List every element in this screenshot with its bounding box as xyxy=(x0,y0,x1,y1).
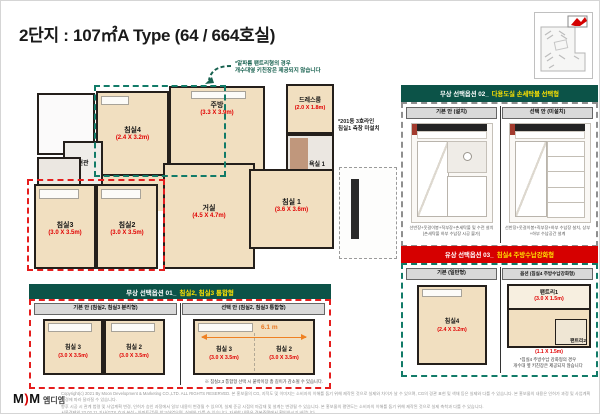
option3-note-line2: 개수대 옆 키친장은 제공되지 않습니다 xyxy=(501,363,595,369)
shelf-stack xyxy=(547,141,585,217)
mini-room-name: 침실4 xyxy=(419,319,485,327)
room-name: 침실 1 xyxy=(251,199,332,207)
option3-pantry-plan: 팬트리1 (3.0 X 1.5m) 팬트리2 xyxy=(507,284,591,348)
option3-body: 기본 (일반형) 옵션 (침실4 주방수납강화형) 침실4 (2.4 X 3.2… xyxy=(401,263,598,377)
counter xyxy=(417,131,487,139)
mini-room-name: 침실 3 xyxy=(195,347,253,355)
balcony-outline xyxy=(339,167,397,259)
column-divider xyxy=(500,106,501,243)
column-divider xyxy=(180,303,181,385)
page-title: 2단지 : 107㎡A Type (64 / 664호실) xyxy=(19,21,275,46)
logo-swoosh-icon: ) xyxy=(24,391,28,406)
logo-letter: M xyxy=(29,391,40,406)
shelf xyxy=(547,141,585,157)
shelf xyxy=(547,156,585,172)
counter xyxy=(515,131,585,139)
lower-cabinet xyxy=(447,176,487,217)
option1-basic-plan: 침실 3 (3.0 X 3.5m) 침실 2 (3.0 X 3.5m) xyxy=(43,319,165,375)
logo-letter: M xyxy=(13,391,24,406)
closet xyxy=(48,323,92,332)
bedroom23-option-outline xyxy=(27,179,165,271)
wardrobe-cabinet xyxy=(515,141,547,217)
option3-note: *침실4 주방수납 강화형의 경우 개수대 옆 키친장은 제공되지 않습니다 xyxy=(501,357,595,370)
room-name: 드레스룸 xyxy=(288,98,332,105)
option1-header-prefix: 무상 선택옵션 01_ xyxy=(126,287,176,297)
dashed-arrow-icon xyxy=(205,63,233,85)
alpha-room-option-outline xyxy=(94,85,226,177)
mini-room-name: 침실 3 xyxy=(45,345,101,353)
shelf xyxy=(547,187,585,203)
closet xyxy=(422,289,462,297)
wall xyxy=(515,124,585,131)
option2-col-left: 기본 안 (설치) xyxy=(406,107,497,119)
option2-panel: 무상 선택옵션 02_ 다용도실 손세탁볼 선택형 기본 안 (설치) 선택 안… xyxy=(401,85,598,243)
site-location-map xyxy=(534,12,593,79)
balcony-wall xyxy=(351,179,359,239)
option2-body: 기본 안 (설치) 선택 안 (미설치) xyxy=(401,102,598,247)
mini-room-name: 침실 2 xyxy=(106,345,162,353)
company-logo: M ) M 엠디엠 xyxy=(13,391,65,406)
option1-selected-plan: 6.1 m 침실 3 (3.0 X 3.5m) 침실 2 (3.0 X 3.5m… xyxy=(193,319,315,375)
side-window-note: *201동 3호라인 침실1 측창 미설치 xyxy=(338,119,408,133)
room-dim: (4.5 X 4.7m) xyxy=(165,213,253,220)
mini-room-dim: (3.0 X 3.5m) xyxy=(45,353,101,360)
option1-header-highlight: 침실2, 침실3 통합형 xyxy=(179,287,234,297)
dimension-label: 6.1 m xyxy=(261,324,278,331)
option1-header: 무상 선택옵션 01_ 침실2, 침실3 통합형 xyxy=(29,284,331,299)
pantry1-area: 팬트리1 (3.0 X 1.5m) xyxy=(509,286,589,310)
wall xyxy=(417,124,487,131)
shelf xyxy=(547,202,585,218)
floor-plan-slide: 2단지 : 107㎡A Type (64 / 664호실) 침실4 (2.4 X… xyxy=(0,0,600,414)
room-dim: (2.0 X 1.8m) xyxy=(288,105,332,112)
side-window-note-line2: 침실1 측창 미설치 xyxy=(338,126,408,133)
closet xyxy=(111,323,155,332)
option1-body: 기본 안 (침실2, 침실3 분리형) 선택 안 (침실2, 침실3 통합형) … xyxy=(29,299,331,389)
mini-room-dim: (2.4 X 3.2m) xyxy=(419,327,485,334)
copyright-line1: Copyright(c) 2021 By Moon Development & … xyxy=(61,391,593,404)
room-living: 거실 (4.5 X 4.7m) xyxy=(163,163,255,269)
utility-room-installed xyxy=(411,123,493,223)
option2-col-right: 선택 안 (미설치) xyxy=(502,107,593,119)
room-name: 거실 xyxy=(165,205,253,213)
dimension-arrow xyxy=(202,337,306,338)
faucet-icon xyxy=(463,152,472,161)
mini-room-dim: (3.0 X 3.5m) xyxy=(195,355,253,362)
wardrobe-cabinet xyxy=(417,141,449,217)
option3-header: 유상 선택옵션 03_ 침실4 주방수납강화형 xyxy=(401,246,598,263)
option1-col-left: 기본 안 (침실2, 침실3 분리형) xyxy=(34,303,177,315)
copyright-line3: 서울경제외 22.02.11 기사(GTX 효과 분석 - 아파트값)을 참고하… xyxy=(61,410,593,414)
site-map-graphic xyxy=(535,13,592,78)
room-dim: (3.6 X 3.6m) xyxy=(251,207,332,214)
closet xyxy=(198,323,253,332)
option2-header: 무상 선택옵션 02_ 다용도실 손세탁볼 선택형 xyxy=(401,85,598,102)
option1-panel: 무상 선택옵션 01_ 침실2, 침실3 통합형 기본 안 (침실2, 침실3 … xyxy=(29,284,331,385)
option1-footnote: ※ 침실2,3 통합형 선택 시 붙박이장 총 길이가 감소될 수 있습니다. xyxy=(205,379,323,385)
utility-room-not-installed xyxy=(509,123,591,223)
pantry2-dim: (1.1 X 1.5m) xyxy=(507,349,591,355)
option3-basic-plan: 침실4 (2.4 X 3.2m) xyxy=(417,285,487,365)
room-dressroom: 드레스룸 (2.0 X 1.8m) xyxy=(286,84,334,134)
kitchen-note: *알파룸 팬트리형의 경우 개수대옆 키친장은 제공되지 않습니다 xyxy=(235,61,395,75)
shelf xyxy=(547,171,585,187)
kitchen-note-line2: 개수대옆 키친장은 제공되지 않습니다 xyxy=(235,68,395,75)
option3-col-right: 옵션 (침실4 주방수납강화형) xyxy=(502,268,593,280)
option3-header-highlight: 침실4 주방수납강화형 xyxy=(497,250,554,259)
option3-panel: 유상 선택옵션 03_ 침실4 주방수납강화형 기본 (일반형) 옵션 (침실4… xyxy=(401,246,598,373)
mini-room-dim: (3.0 X 1.5m) xyxy=(509,296,589,302)
mini-room-name: 팬트리1 xyxy=(509,288,589,296)
option2-header-highlight: 다용도실 손세탁볼 선택형 xyxy=(492,89,559,98)
option2-caption-left: 선반장+옷걸이봉+직부장+손세탁볼 및 수전 설치 (손세탁볼 하부 수납장 시… xyxy=(407,225,496,236)
option2-caption-right: 선반장+옷걸이봉+직부장+하부 수납장 설치, 상부+하부 수납공간 설계 xyxy=(503,225,592,236)
room-bedroom1: 침실 1 (3.6 X 3.6m) xyxy=(249,169,334,249)
mini-room-name: 팬트리2 xyxy=(570,337,586,344)
mini-room-name: 침실 2 xyxy=(255,347,313,355)
option2-header-prefix: 무상 선택옵션 02_ xyxy=(440,89,489,98)
option3-col-left: 기본 (일반형) xyxy=(406,268,497,280)
copyright-text: Copyright(c) 2021 By Moon Development & … xyxy=(61,391,593,414)
option3-header-prefix: 유상 선택옵션 03_ xyxy=(445,250,494,259)
option1-col-right: 선택 안 (침실2, 침실3 통합형) xyxy=(182,303,325,315)
mini-room-dim: (3.0 X 3.5m) xyxy=(106,353,162,360)
mini-room-dim: (3.0 X 3.5m) xyxy=(255,355,313,362)
